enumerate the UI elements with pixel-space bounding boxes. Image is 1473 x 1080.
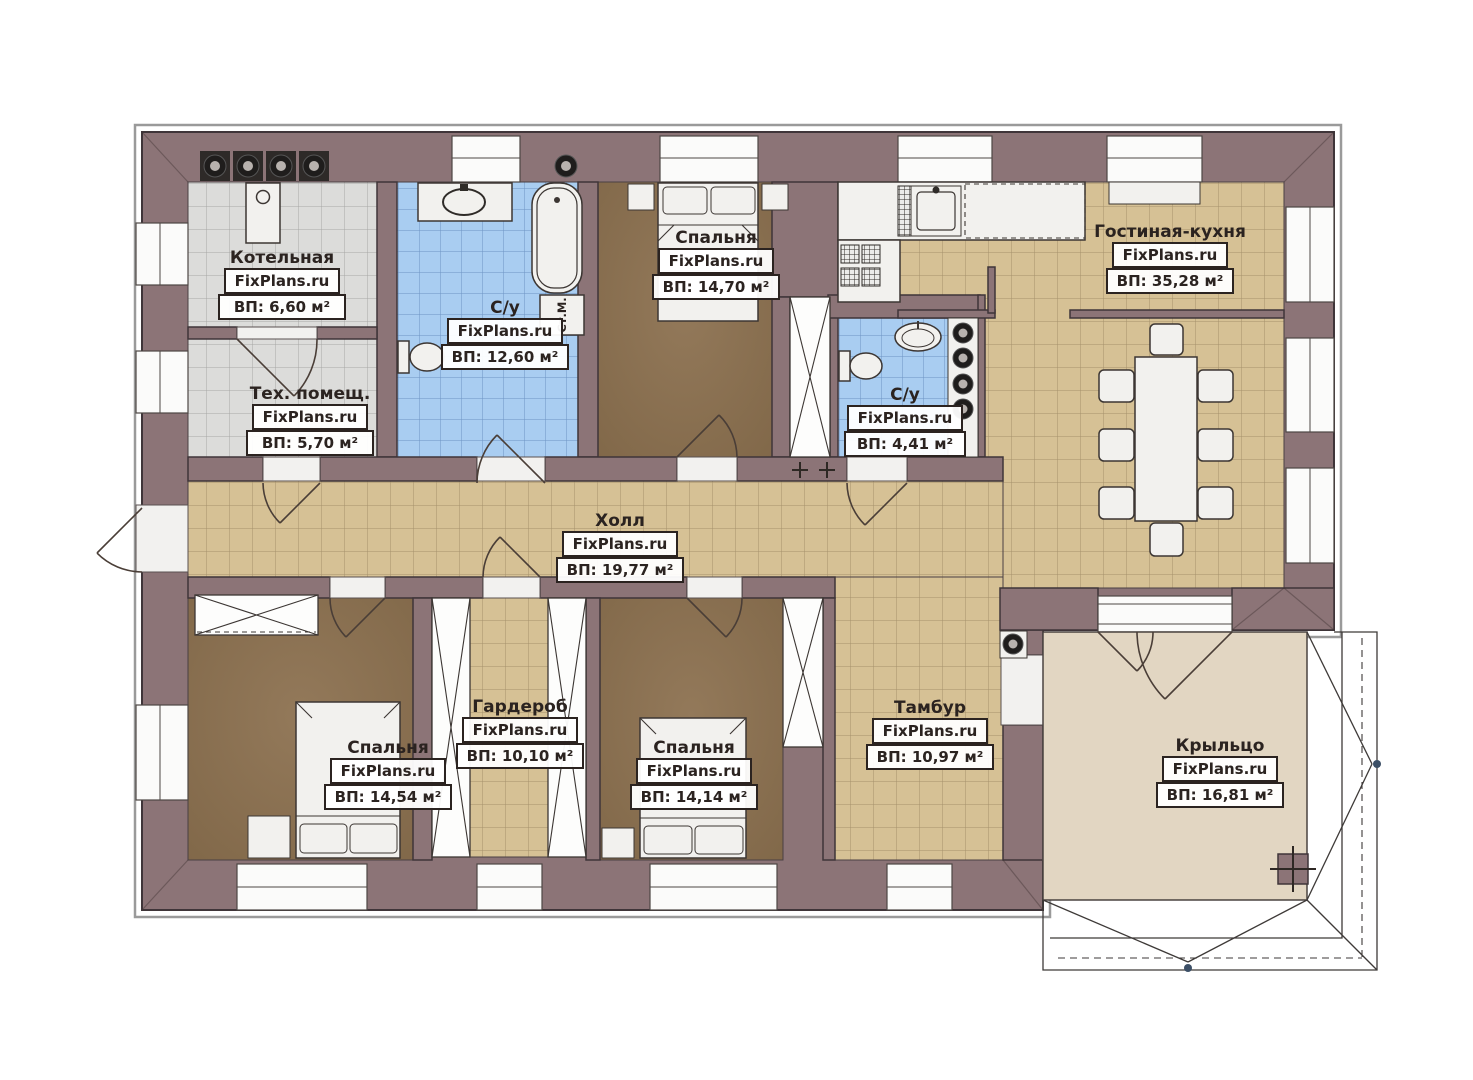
pillow [350,824,397,853]
toilet-small-icon [839,351,882,381]
floor-plan-page: Ст.М. [0,0,1473,1080]
porch-glass-door [1098,596,1232,632]
room-label-wardrobe: Гардероб FixPlans.ru ВП: 10,10 м² [457,697,583,768]
room-area: ВП: 14,54 м² [335,788,442,806]
brand-watermark: FixPlans.ru [458,322,553,340]
room-area: ВП: 12,60 м² [452,348,559,366]
window-left-tech [136,351,188,413]
nightstand [602,828,634,858]
room-name: Спальня [675,228,757,248]
nightstand [628,184,654,210]
room-name: Крыльцо [1176,736,1265,756]
brand-watermark: FixPlans.ru [573,535,668,553]
brand-watermark: FixPlans.ru [669,252,764,270]
sill-living [1109,182,1200,204]
nightstand [248,816,290,858]
floor-plan-drawing: Ст.М. [0,0,1473,1080]
room-name: Спальня [347,738,429,758]
brand-watermark: FixPlans.ru [473,721,568,739]
room-area: ВП: 4,41 м² [857,435,953,453]
window-bottom-bedroom-left [237,864,367,910]
room-area: ВП: 6,60 м² [234,298,330,316]
window-left-boiler [136,223,188,285]
boiler-unit-icon [246,183,280,243]
chair [1099,370,1134,402]
room-label-boiler: Котельная FixPlans.ru ВП: 6,60 м² [219,248,345,319]
room-area: ВП: 14,70 м² [663,278,770,296]
window-top-bathroom [452,136,520,182]
kitchen-sink-icon [898,186,961,236]
room-area: ВП: 16,81 м² [1167,786,1274,804]
pillow [711,187,755,214]
chair [1198,429,1233,461]
brand-watermark: FixPlans.ru [647,762,742,780]
room-area: ВП: 10,10 м² [467,747,574,765]
brand-watermark: FixPlans.ru [1123,246,1218,264]
toilet-main-icon [398,341,444,373]
pillow [695,826,743,854]
pillow [644,826,692,854]
closet-mid [783,598,823,747]
room-name: С/у [490,298,520,318]
chair [1099,429,1134,461]
window-right-living-2 [1286,338,1334,432]
window-top-bedroom [660,136,758,182]
pillow [663,187,707,214]
roof-node [1373,760,1381,768]
roof-node [1184,964,1192,972]
window-bottom-tambour [887,864,952,910]
chair [1150,523,1183,556]
vanity-sink-icon [418,183,512,221]
room-name: Холл [595,511,645,531]
chair [1198,370,1233,402]
nightstand [762,184,788,210]
column-icon [1000,631,1027,658]
window-right-living-1 [1286,207,1334,302]
brand-watermark: FixPlans.ru [263,408,358,426]
room-area: ВП: 14,14 м² [641,788,748,806]
room-area: ВП: 10,97 м² [877,748,984,766]
window-right-living-3 [1286,468,1334,563]
window-left-bedroom [136,705,188,800]
room-name: С/у [890,385,920,405]
chair [1150,324,1183,355]
room-area: ВП: 5,70 м² [262,434,358,452]
room-area: ВП: 19,77 м² [567,561,674,579]
chair [1198,487,1233,519]
room-label-porch: Крыльцо FixPlans.ru ВП: 16,81 м² [1157,736,1283,807]
room-name: Гостиная-кухня [1094,222,1246,242]
room-name: Спальня [653,738,735,758]
room-name: Гардероб [472,697,568,717]
dining-table [1135,357,1197,521]
brand-watermark: FixPlans.ru [1173,760,1268,778]
room-name: Котельная [230,248,334,268]
brand-watermark: FixPlans.ru [883,722,978,740]
brand-watermark: FixPlans.ru [858,409,953,427]
room-name: Тамбур [894,698,966,718]
pillow [300,824,347,853]
window-top-living [1107,136,1202,182]
room-name: Тех. помещ. [250,384,371,404]
room-area: ВП: 35,28 м² [1117,272,1224,290]
brand-watermark: FixPlans.ru [235,272,330,290]
window-top-kitchen [898,136,992,182]
bathtub-icon [532,183,582,293]
window-bottom-bedroom-mid [650,864,777,910]
chair [1099,487,1134,519]
room-label-living-kitchen: Гостиная-кухня FixPlans.ru ВП: 35,28 м² [1094,222,1246,293]
window-bottom-wardrobe [477,864,542,910]
wardrobe-box [195,595,318,635]
brand-watermark: FixPlans.ru [341,762,436,780]
room-label-tech: Тех. помещ. FixPlans.ru ВП: 5,70 м² [247,384,373,455]
vent-ring-center [561,161,571,171]
closet-top [790,297,830,457]
